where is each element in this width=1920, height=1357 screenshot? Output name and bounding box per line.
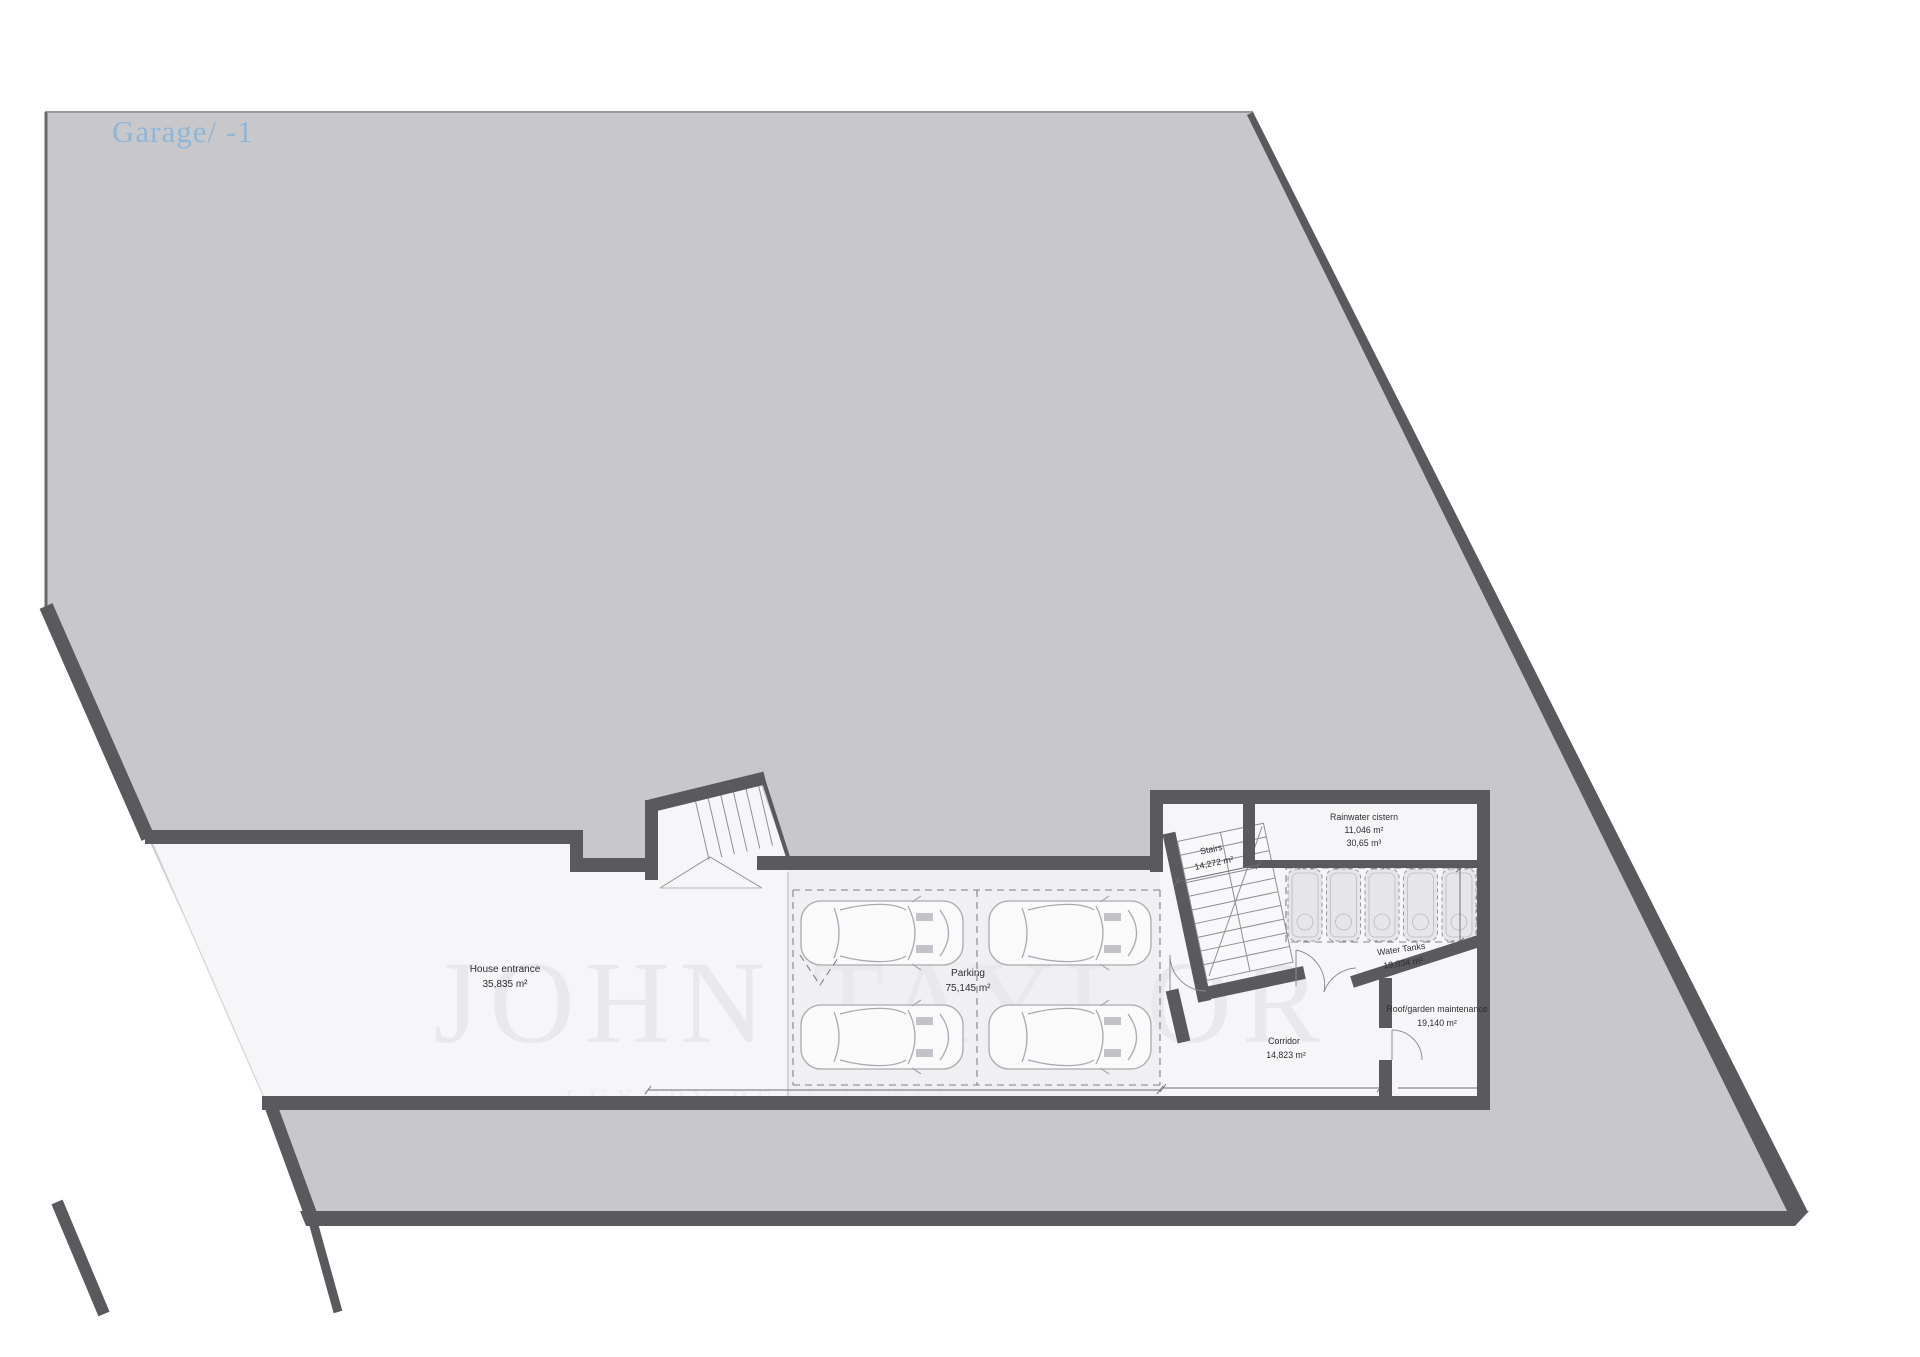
maintenance-left-wall-upper <box>1379 978 1392 1028</box>
house-entrance-area: 35,835 m² <box>482 979 528 990</box>
tech-block-jog-wall <box>1150 790 1163 872</box>
cistern-volume: 30,65 m³ <box>1347 838 1382 848</box>
cistern-bottom-wall <box>1243 860 1490 868</box>
tank-1 <box>1288 869 1322 941</box>
site-bottom-wall <box>300 1211 1809 1226</box>
house-entrance-name: House entrance <box>470 964 541 975</box>
entrance-top-wall-2 <box>570 858 655 872</box>
parking-name: Parking <box>951 968 985 979</box>
cistern-left-wall <box>1243 804 1255 868</box>
car-bottom-right <box>989 1000 1151 1074</box>
maintenance-area: 19,140 m² <box>1417 1018 1457 1028</box>
corridor-name: Corridor <box>1268 1036 1300 1046</box>
tank-3 <box>1365 869 1399 941</box>
water-tanks-room <box>1286 866 1477 944</box>
car-bottom-left <box>801 1000 963 1074</box>
tank-2 <box>1327 869 1361 941</box>
tank-4 <box>1404 869 1438 941</box>
building-bottom-wall <box>262 1096 1490 1110</box>
maintenance-left-wall-lower <box>1379 1060 1392 1098</box>
ramp-wall-fragment-left <box>57 1202 104 1314</box>
cistern-area: 11,046 m² <box>1345 825 1384 835</box>
car-top-left <box>801 896 963 970</box>
parking-area: 75,145 m² <box>945 983 991 994</box>
maintenance-name: Roof/garden maintenance <box>1386 1004 1487 1014</box>
ramp-wall-fragment-right <box>313 1222 338 1312</box>
page-title: Garage/ -1 <box>112 114 254 149</box>
entrance-top-wall <box>145 830 578 844</box>
cistern-name: Rainwater cistern <box>1330 812 1398 822</box>
tech-block-right-wall <box>1477 790 1490 1110</box>
floor-plan-drawing: JOHN TAYLOR LUXURY REAL ESTATE <box>0 0 1920 1357</box>
corridor-area: 14,823 m² <box>1266 1050 1306 1060</box>
floor-plan-page: JOHN TAYLOR LUXURY REAL ESTATE <box>0 0 1920 1357</box>
tech-block-top-wall <box>1150 790 1490 804</box>
garage-top-wall <box>757 856 1163 870</box>
car-top-right <box>989 896 1151 970</box>
tank-5 <box>1442 869 1476 941</box>
